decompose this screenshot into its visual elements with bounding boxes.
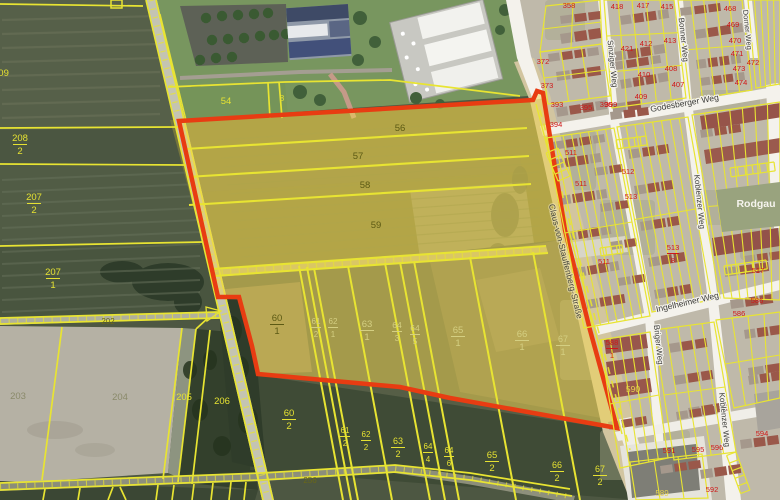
- svg-text:472: 472: [747, 58, 760, 67]
- svg-text:2: 2: [17, 146, 22, 157]
- svg-text:8: 8: [671, 256, 675, 265]
- svg-text:202: 202: [101, 317, 115, 326]
- svg-text:408: 408: [665, 64, 678, 73]
- svg-text:66: 66: [552, 460, 562, 470]
- svg-text:1: 1: [610, 351, 614, 360]
- svg-text:358: 358: [563, 1, 576, 10]
- svg-text:64: 64: [424, 442, 433, 451]
- svg-text:410: 410: [638, 70, 651, 79]
- svg-text:1: 1: [560, 347, 565, 357]
- svg-text:418: 418: [611, 2, 624, 11]
- svg-text:65: 65: [487, 450, 498, 461]
- svg-text:1: 1: [364, 332, 369, 343]
- svg-text:469: 469: [727, 20, 740, 29]
- svg-text:417: 417: [637, 1, 650, 10]
- svg-text:594: 594: [756, 429, 769, 438]
- svg-text:511: 511: [598, 257, 610, 266]
- svg-text:2: 2: [597, 477, 602, 487]
- svg-text:64: 64: [392, 320, 402, 330]
- svg-text:511: 511: [575, 179, 587, 188]
- svg-text:2: 2: [364, 443, 369, 452]
- svg-text:207: 207: [45, 267, 61, 278]
- svg-text:203: 203: [10, 391, 26, 402]
- svg-text:421: 421: [621, 44, 634, 53]
- svg-text:2: 2: [395, 449, 400, 459]
- svg-text:64: 64: [410, 323, 420, 333]
- svg-text:60: 60: [284, 408, 295, 419]
- svg-text:208: 208: [12, 133, 28, 144]
- svg-text:415: 415: [661, 2, 674, 11]
- svg-text:2: 2: [489, 463, 494, 474]
- svg-text:67: 67: [558, 334, 568, 344]
- svg-text:2: 2: [314, 330, 319, 339]
- svg-text:63: 63: [393, 436, 403, 446]
- svg-text:586: 586: [733, 309, 746, 318]
- svg-text:204: 204: [112, 392, 128, 403]
- svg-text:511: 511: [565, 148, 577, 157]
- svg-text:60: 60: [272, 313, 283, 324]
- svg-text:62: 62: [362, 430, 371, 439]
- svg-text:2: 2: [286, 421, 291, 432]
- svg-text:61: 61: [312, 317, 321, 326]
- svg-text:57: 57: [353, 151, 364, 162]
- svg-text:206: 206: [214, 396, 230, 407]
- svg-text:8: 8: [280, 94, 285, 103]
- svg-text:2: 2: [31, 205, 36, 216]
- svg-text:64: 64: [445, 446, 454, 455]
- svg-text:409: 409: [635, 92, 648, 101]
- svg-text:1: 1: [519, 342, 524, 353]
- svg-text:468: 468: [724, 4, 737, 13]
- svg-text:65: 65: [453, 325, 464, 336]
- svg-text:59: 59: [371, 220, 382, 231]
- svg-text:56: 56: [395, 123, 406, 134]
- svg-text:1: 1: [455, 338, 460, 349]
- svg-text:2: 2: [343, 439, 348, 448]
- svg-text:54: 54: [221, 96, 232, 107]
- svg-text:413: 413: [664, 36, 677, 45]
- svg-text:513: 513: [625, 192, 638, 201]
- svg-text:394: 394: [550, 120, 563, 129]
- svg-text:586: 586: [751, 296, 764, 305]
- svg-text:513: 513: [667, 243, 680, 252]
- svg-text:589: 589: [655, 489, 669, 498]
- svg-text:5: 5: [413, 336, 418, 346]
- svg-text:4: 4: [426, 455, 431, 464]
- svg-text:596: 596: [711, 443, 724, 452]
- svg-text:393: 393: [551, 100, 564, 109]
- svg-text:592: 592: [706, 485, 719, 494]
- svg-text:473: 473: [733, 64, 746, 73]
- svg-text:Rodgau: Rodgau: [736, 198, 775, 210]
- svg-text:1: 1: [50, 280, 55, 291]
- svg-text:205: 205: [176, 392, 192, 403]
- svg-text:590: 590: [626, 384, 640, 394]
- svg-text:407: 407: [672, 80, 685, 89]
- svg-text:470: 470: [729, 36, 742, 45]
- svg-text:1: 1: [274, 326, 279, 337]
- svg-text:67: 67: [595, 464, 605, 474]
- svg-text:517: 517: [752, 266, 765, 275]
- svg-text:595: 595: [692, 445, 705, 454]
- svg-text:62: 62: [329, 317, 338, 326]
- svg-text:66: 66: [517, 329, 528, 340]
- svg-text:372: 372: [537, 57, 550, 66]
- svg-text:63: 63: [362, 319, 373, 330]
- svg-text:591: 591: [663, 446, 676, 455]
- svg-text:209: 209: [0, 68, 9, 79]
- svg-text:61: 61: [341, 426, 350, 435]
- svg-text:2: 2: [554, 473, 559, 483]
- svg-text:256: 256: [303, 476, 317, 485]
- svg-text:474: 474: [735, 78, 748, 87]
- svg-text:58: 58: [360, 180, 371, 191]
- svg-text:395: 395: [580, 103, 593, 112]
- svg-text:373: 373: [541, 81, 554, 90]
- svg-text:207: 207: [26, 192, 42, 203]
- svg-text:588: 588: [606, 338, 619, 347]
- svg-text:412: 412: [640, 39, 653, 48]
- svg-text:471: 471: [731, 49, 744, 58]
- svg-text:6: 6: [447, 459, 452, 468]
- svg-text:512: 512: [622, 167, 635, 176]
- svg-text:3: 3: [395, 333, 400, 343]
- svg-text:1: 1: [331, 330, 336, 339]
- svg-text:399: 399: [605, 100, 618, 109]
